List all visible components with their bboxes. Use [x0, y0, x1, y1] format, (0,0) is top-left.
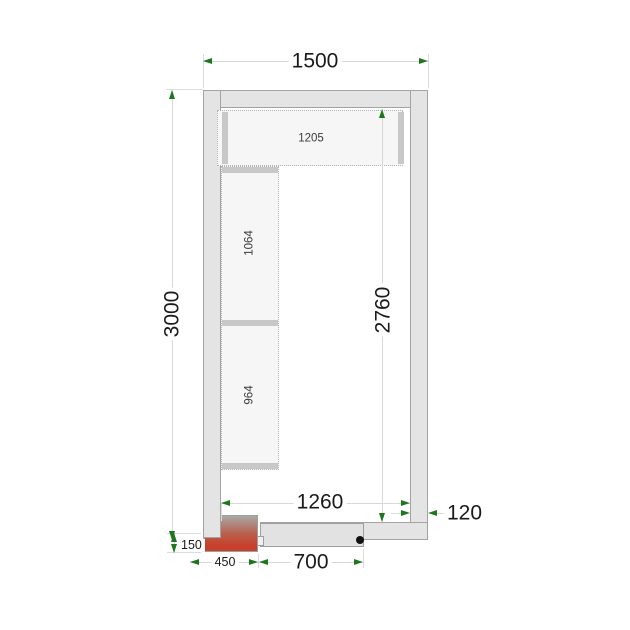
dim-120-arrow-left	[401, 510, 410, 516]
dim-label-wall-thickness: 120	[444, 503, 485, 524]
door-frame-notch	[257, 536, 264, 546]
dim-label-outer-height: 3000	[162, 288, 183, 341]
dim-3000-arrow-top	[169, 90, 175, 99]
shelf-left-upper-label: 1064	[244, 230, 256, 256]
dim-label-door-width: 700	[290, 552, 331, 573]
dim-2760-arrow-bottom	[379, 513, 385, 522]
dim-1500-arrow-right	[419, 58, 428, 64]
dim-label-unit-offset: 150	[178, 539, 205, 552]
dim-1500-arrow-left	[203, 58, 212, 64]
dim-700-arrow-left	[259, 559, 268, 565]
shelf-left-cap-bottom	[222, 463, 278, 469]
dim-450-arrow-left	[190, 559, 199, 565]
ext-line	[391, 513, 401, 514]
door-leaf	[260, 523, 364, 547]
shelf-top-label: 1205	[298, 133, 324, 145]
dim-2760-arrow-top	[379, 109, 385, 118]
shelf-top-end-cap-left	[222, 112, 228, 164]
dim-450-arrow-right	[249, 559, 258, 565]
ext-line	[428, 54, 429, 88]
shelf-top-end-cap-right	[398, 112, 404, 164]
dim-150-arrow-bottom	[171, 544, 177, 553]
dim-700-arrow-right	[354, 559, 363, 565]
dim-1260-arrow-left	[221, 500, 230, 506]
dim-label-inner-width: 1260	[294, 492, 347, 513]
wall-top	[203, 90, 428, 108]
ext-line	[363, 549, 364, 568]
wall-right	[410, 90, 428, 540]
coldroom-floorplan: 1500 3000 2760 1260 120 150 450 700 1205…	[0, 0, 630, 630]
dim-120-arrow-right	[428, 510, 437, 516]
shelf-left-divider	[222, 320, 278, 326]
dim-label-unit-width: 450	[212, 556, 239, 569]
shelf-left	[221, 166, 279, 470]
dim-label-outer-width: 1500	[289, 51, 342, 72]
dim-150-arrow-top	[171, 533, 177, 542]
shelf-left-cap-top	[222, 167, 278, 173]
dim-1260-arrow-right	[401, 500, 410, 506]
shelf-left-lower-label: 964	[244, 385, 256, 404]
door-hinge-dot	[356, 536, 364, 544]
dim-label-inner-height: 2760	[373, 284, 394, 337]
